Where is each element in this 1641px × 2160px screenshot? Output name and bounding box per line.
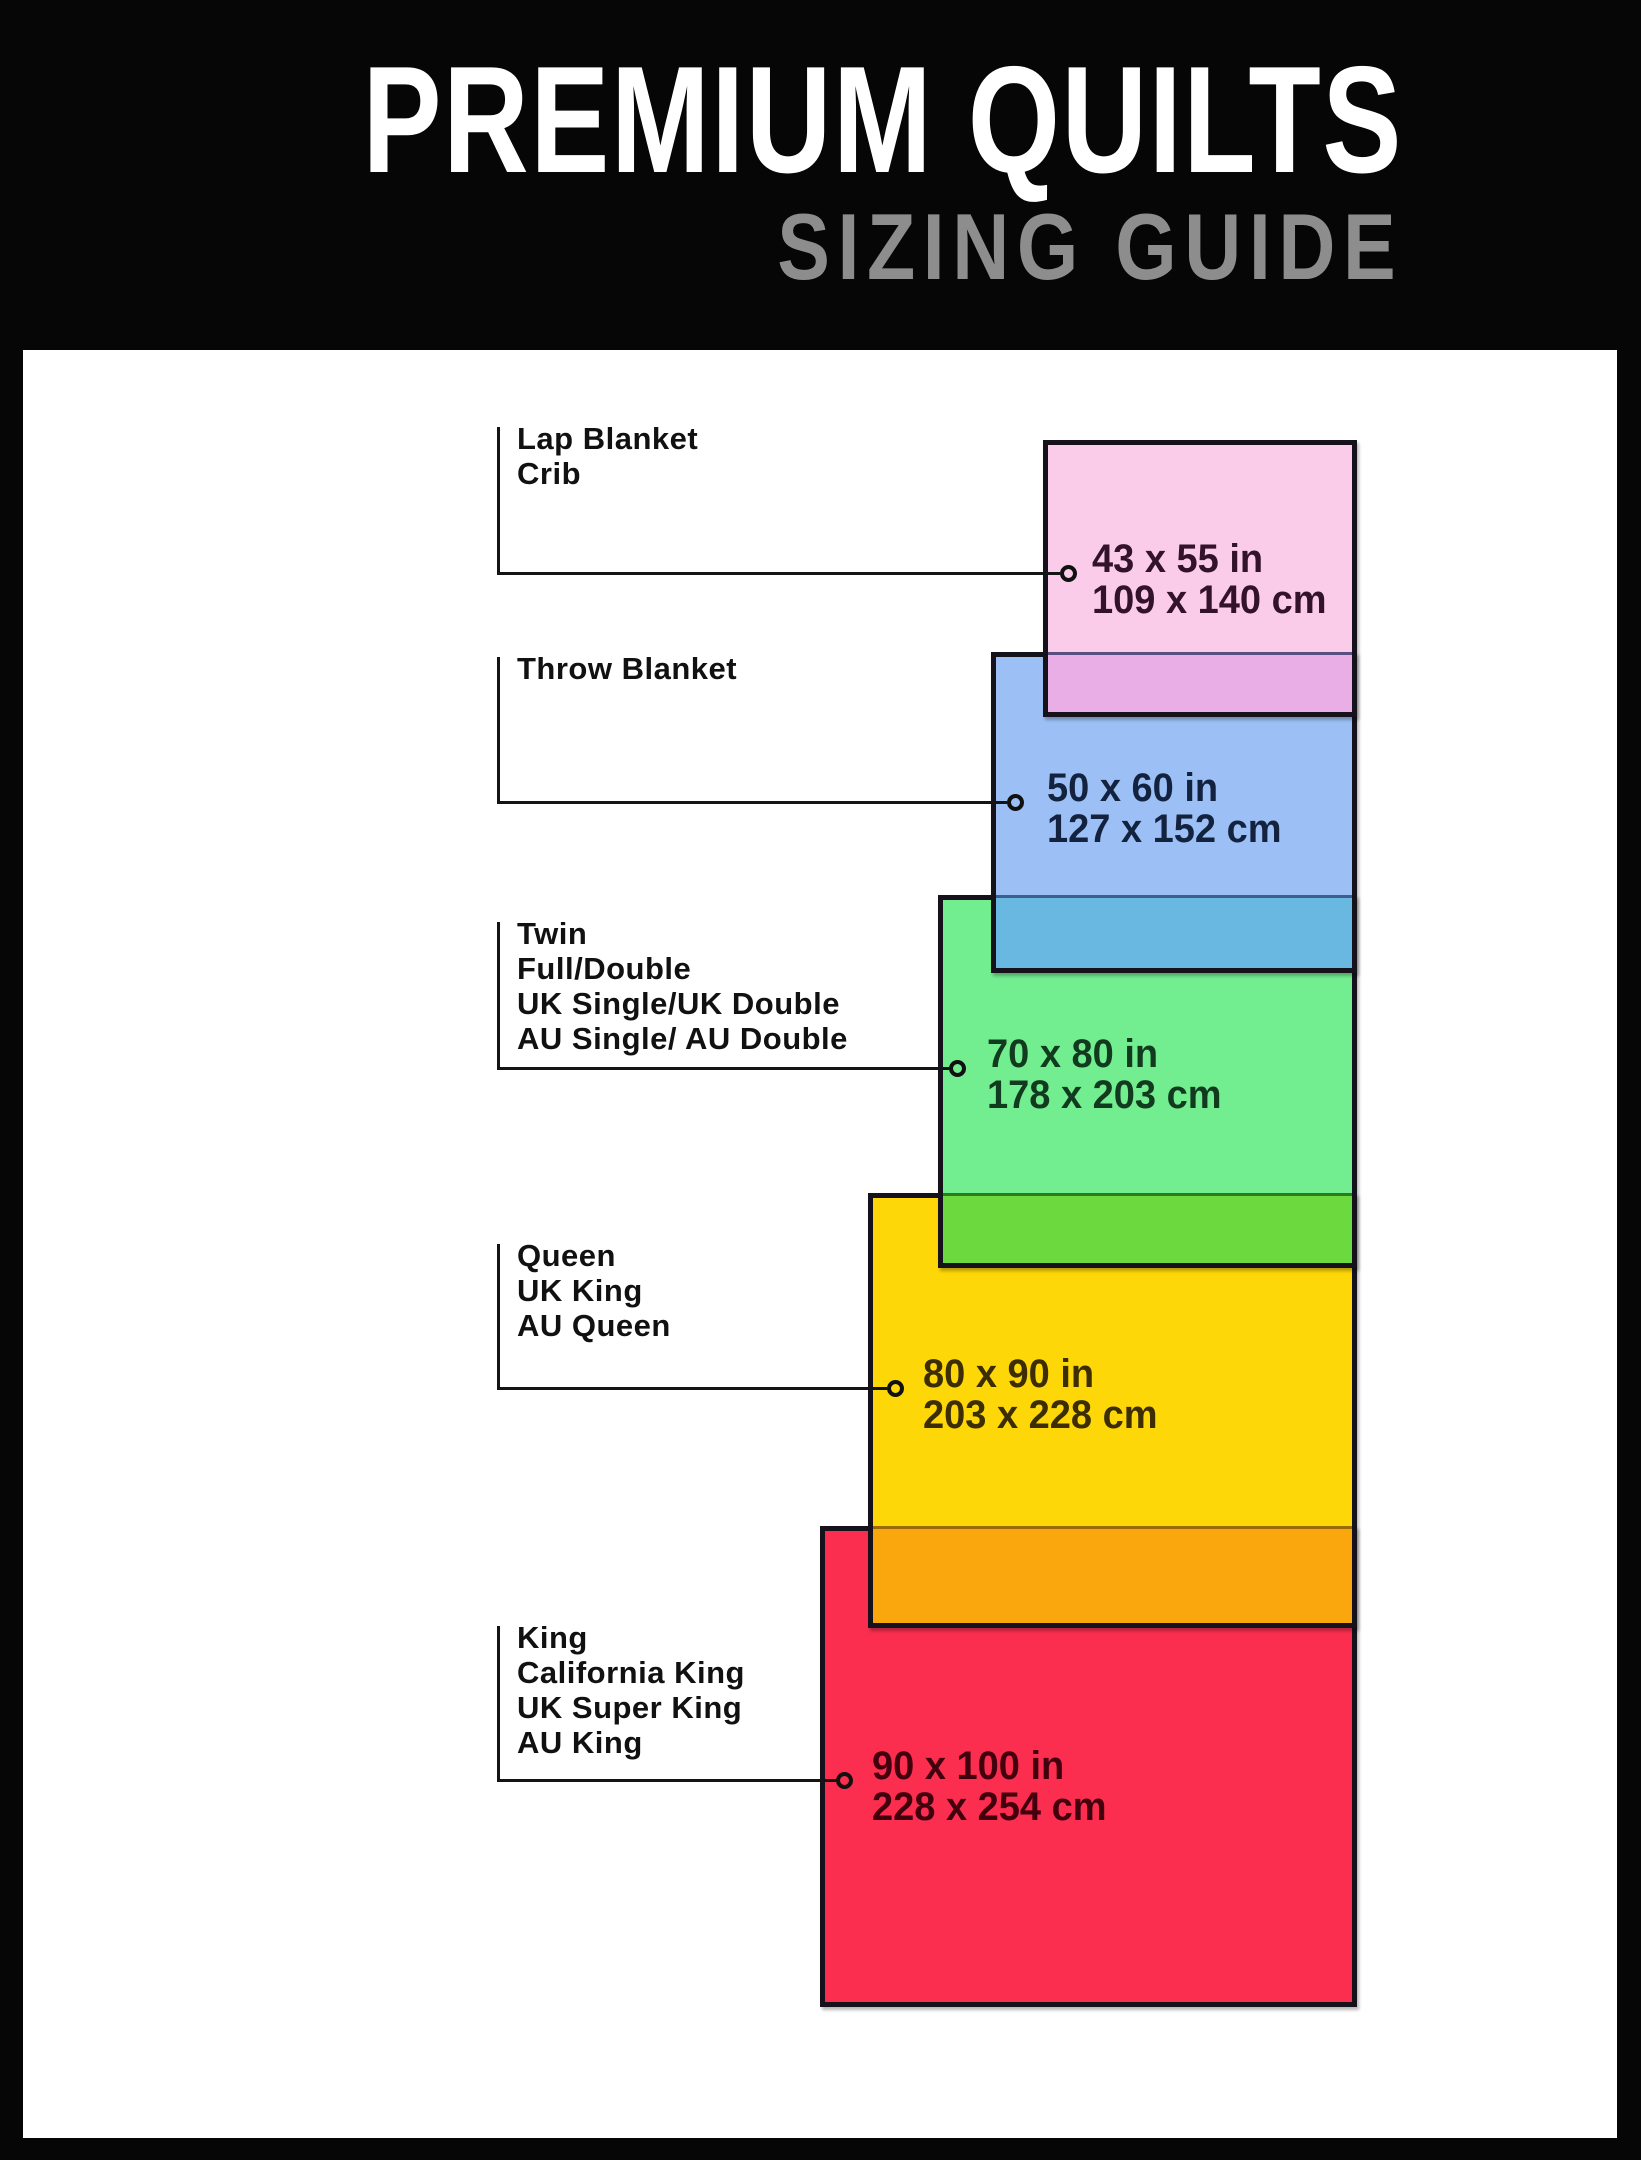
- quilt-label-line: Lap Blanket: [517, 421, 698, 456]
- quilt-label-line: AU King: [517, 1725, 745, 1760]
- overlap-lap-blanket-crib-throw-blanket: [1048, 652, 1352, 712]
- quilt-label-line: Queen: [517, 1238, 671, 1273]
- quilt-label-line: UK Single/UK Double: [517, 986, 848, 1021]
- quilt-dimensions-line: 43 x 55 in: [1092, 539, 1327, 580]
- quilt-label-line: AU Queen: [517, 1308, 671, 1343]
- overlap-throw-blanket-twin-full-double: [996, 895, 1352, 968]
- connector-dot-lap-blanket-crib: [1060, 565, 1077, 582]
- quilt-label-line: Full/Double: [517, 951, 848, 986]
- connector-dot-queen-uk-king-au-queen: [887, 1380, 904, 1397]
- quilt-dimensions-line: 70 x 80 in: [987, 1034, 1222, 1075]
- quilt-label-lap-blanket-crib: Lap BlanketCrib: [517, 421, 698, 491]
- quilt-label-line: California King: [517, 1655, 745, 1690]
- quilt-dimensions-line: 109 x 140 cm: [1092, 580, 1327, 621]
- quilt-label-line: King: [517, 1620, 745, 1655]
- connector-horizontal-lap-blanket-crib: [497, 572, 1060, 575]
- overlap-twin-full-double-queen-uk-king-au-queen: [943, 1193, 1352, 1263]
- connector-vertical-lap-blanket-crib: [497, 427, 500, 574]
- quilt-label-throw-blanket: Throw Blanket: [517, 651, 737, 686]
- connector-vertical-throw-blanket: [497, 657, 500, 803]
- quilt-label-king-california-king: KingCalifornia KingUK Super KingAU King: [517, 1620, 745, 1760]
- quilt-dimensions-line: 178 x 203 cm: [987, 1075, 1222, 1116]
- quilt-label-line: AU Single/ AU Double: [517, 1021, 848, 1056]
- connector-horizontal-throw-blanket: [497, 801, 1007, 804]
- quilt-dimensions-line: 127 x 152 cm: [1047, 809, 1282, 850]
- connector-horizontal-king-california-king: [497, 1779, 836, 1782]
- poster: PREMIUM QUILTS SIZING GUIDE Lap BlanketC…: [0, 0, 1641, 2160]
- quilt-label-line: UK King: [517, 1273, 671, 1308]
- quilt-label-line: Twin: [517, 916, 848, 951]
- quilt-label-line: Throw Blanket: [517, 651, 737, 686]
- diagram: Lap BlanketCrib43 x 55 in109 x 140 cmThr…: [0, 0, 1641, 2160]
- quilt-dimensions-line: 50 x 60 in: [1047, 768, 1282, 809]
- connector-horizontal-queen-uk-king-au-queen: [497, 1387, 887, 1390]
- quilt-dimensions-queen-uk-king-au-queen: 80 x 90 in203 x 228 cm: [923, 1354, 1158, 1436]
- quilt-label-line: Crib: [517, 456, 698, 491]
- overlap-queen-uk-king-au-queen-king-california-king: [873, 1526, 1352, 1623]
- quilt-dimensions-twin-full-double: 70 x 80 in178 x 203 cm: [987, 1034, 1222, 1116]
- quilt-dimensions-king-california-king: 90 x 100 in228 x 254 cm: [872, 1746, 1107, 1828]
- connector-horizontal-twin-full-double: [497, 1067, 949, 1070]
- connector-dot-twin-full-double: [949, 1060, 966, 1077]
- connector-vertical-king-california-king: [497, 1626, 500, 1781]
- connector-dot-throw-blanket: [1007, 794, 1024, 811]
- connector-vertical-queen-uk-king-au-queen: [497, 1244, 500, 1389]
- quilt-label-queen-uk-king-au-queen: QueenUK KingAU Queen: [517, 1238, 671, 1343]
- connector-vertical-twin-full-double: [497, 922, 500, 1069]
- quilt-label-twin-full-double: TwinFull/DoubleUK Single/UK DoubleAU Sin…: [517, 916, 848, 1056]
- quilt-dimensions-line: 203 x 228 cm: [923, 1395, 1158, 1436]
- connector-dot-king-california-king: [836, 1772, 853, 1789]
- quilt-label-line: UK Super King: [517, 1690, 745, 1725]
- quilt-dimensions-line: 80 x 90 in: [923, 1354, 1158, 1395]
- quilt-dimensions-lap-blanket-crib: 43 x 55 in109 x 140 cm: [1092, 539, 1327, 621]
- quilt-dimensions-line: 228 x 254 cm: [872, 1787, 1107, 1828]
- quilt-dimensions-throw-blanket: 50 x 60 in127 x 152 cm: [1047, 768, 1282, 850]
- quilt-dimensions-line: 90 x 100 in: [872, 1746, 1107, 1787]
